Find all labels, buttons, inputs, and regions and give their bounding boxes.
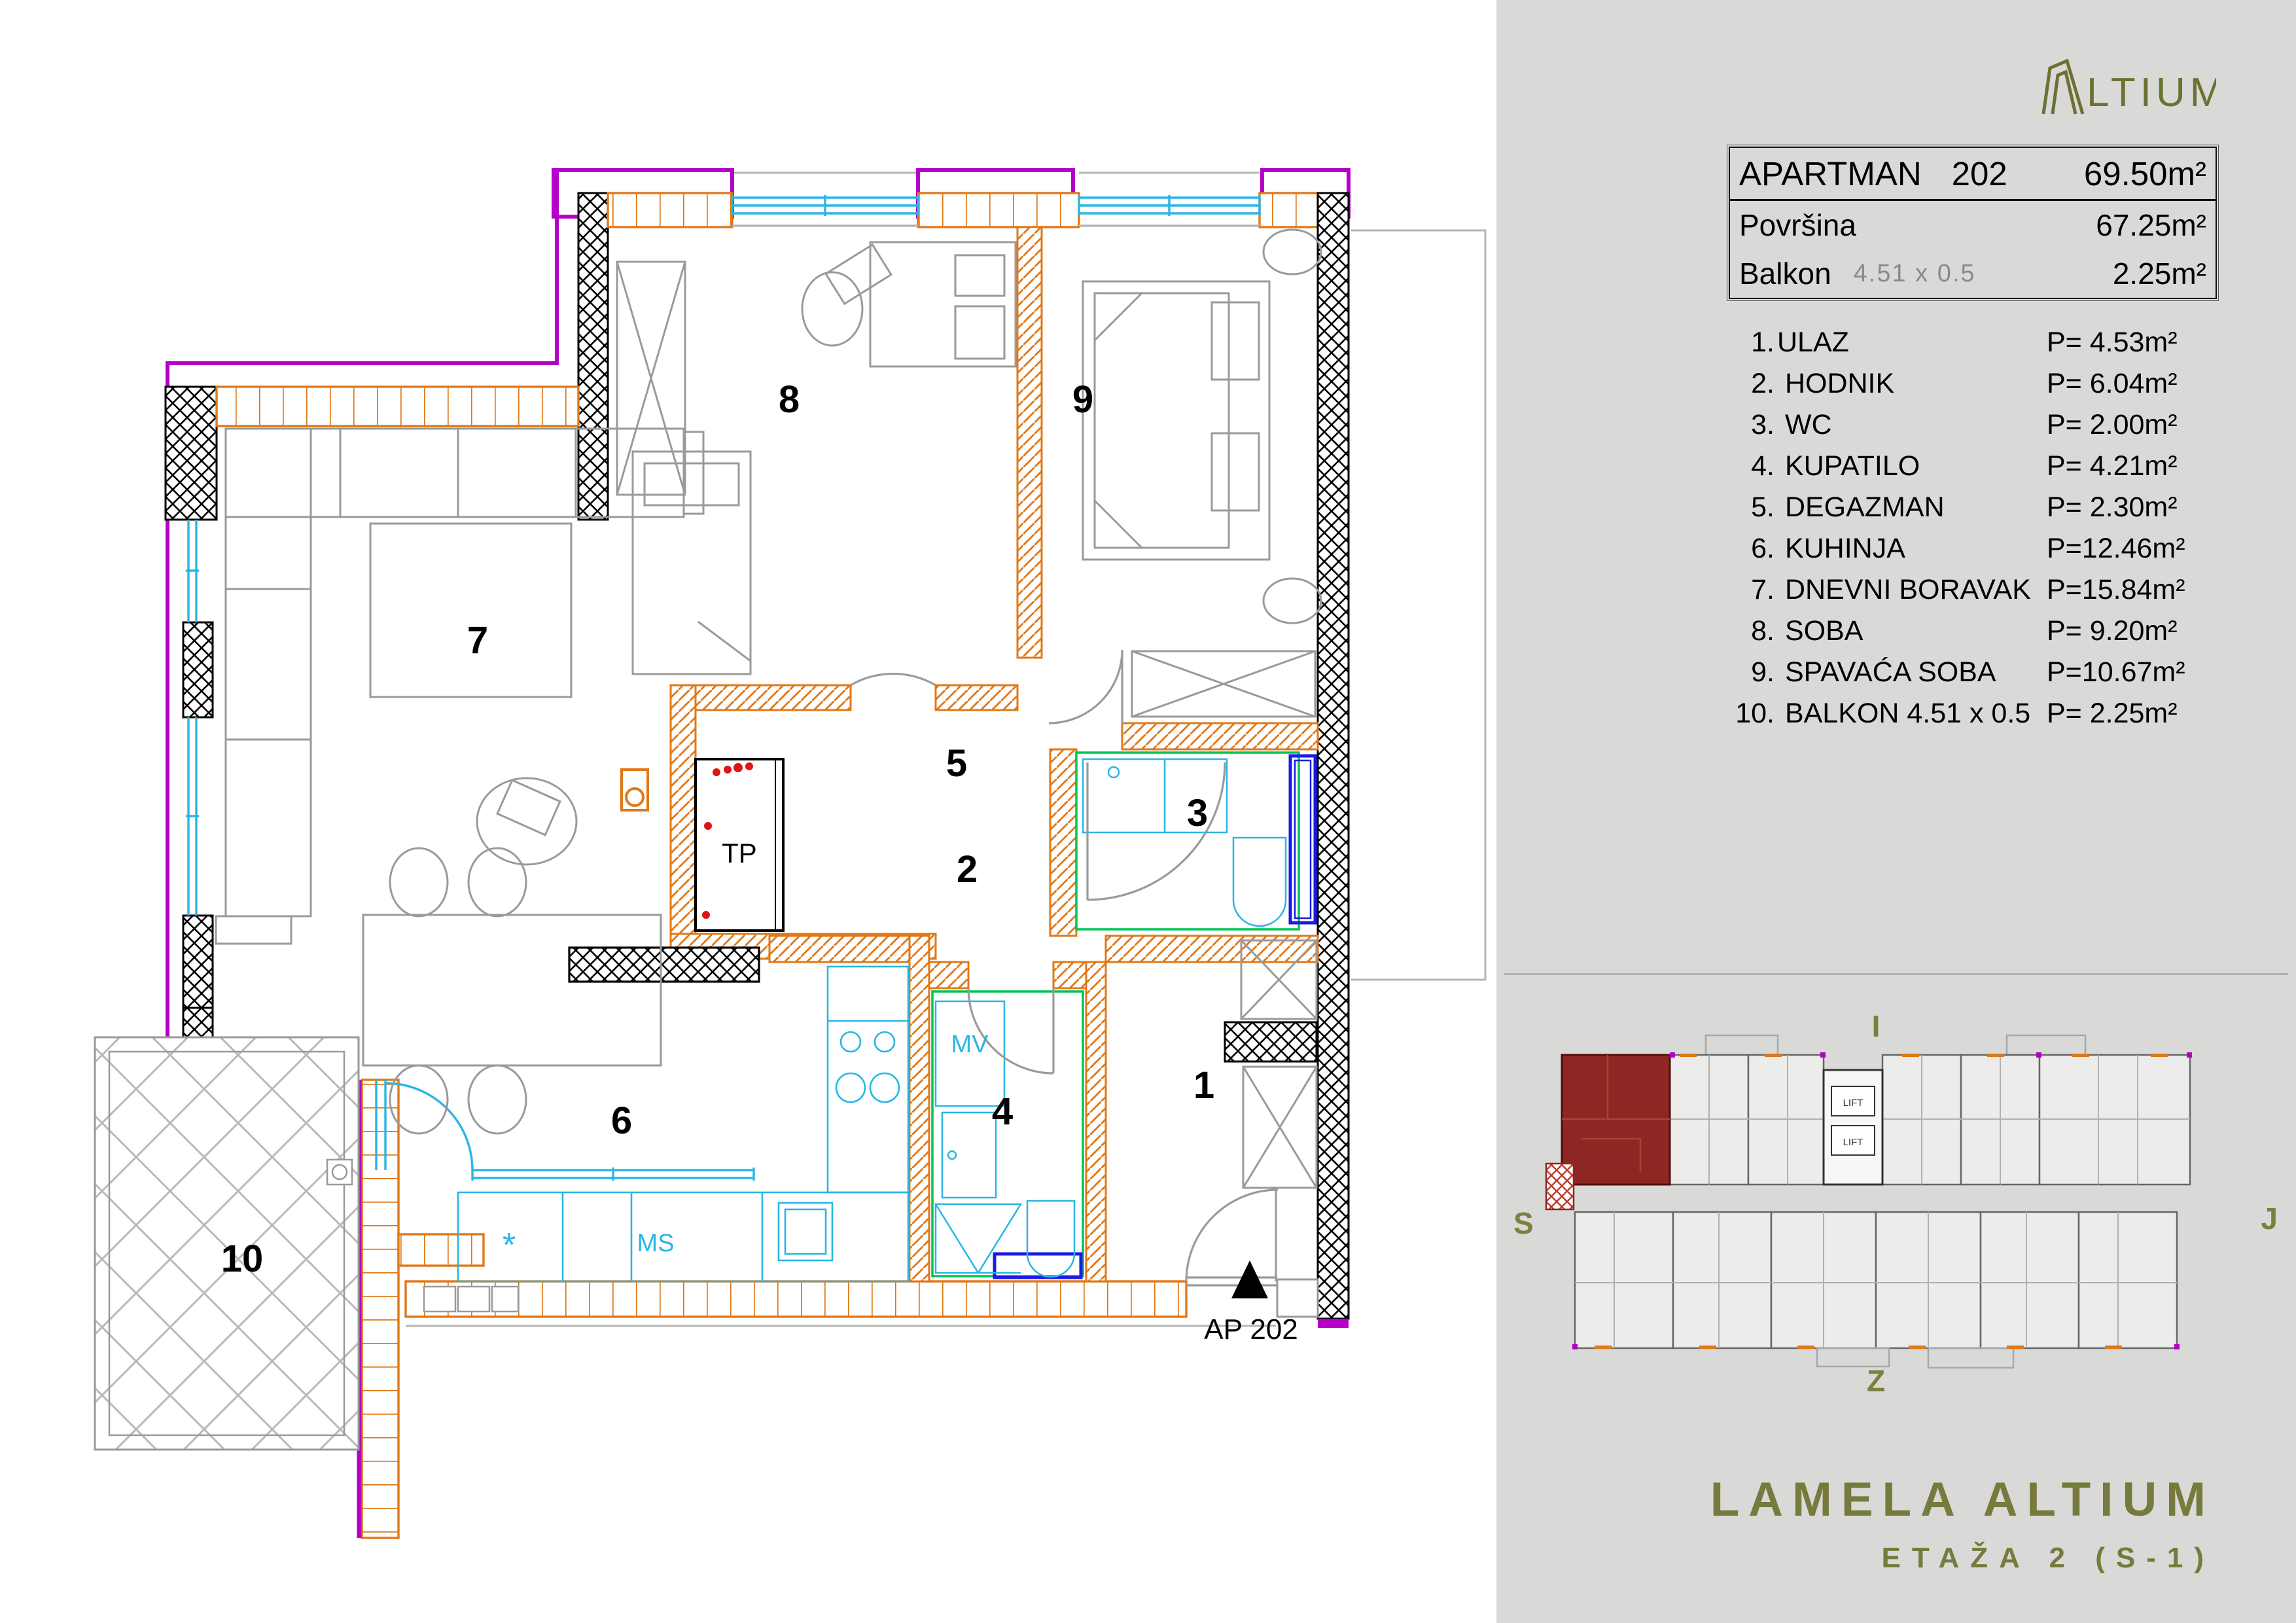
room-9-area: P=10.67m²	[2047, 656, 2214, 688]
room-list-item-10: 10. BALKON 4.51 x 0.5P= 2.25m²	[1729, 693, 2214, 734]
balkon-value: 2.25m²	[2113, 256, 2206, 291]
balkon-dim: 4.51 x 0.5	[1854, 260, 1976, 288]
room-4-name: KUPATILO	[1777, 450, 1920, 482]
compass-west: S	[1513, 1206, 1534, 1240]
coffee-table	[370, 524, 571, 697]
sidebar: LTIUM APARTMAN 202 69.50m² Površina 67.2…	[1496, 0, 2296, 1623]
page: 1 2 3 4 5 6 7 8 9 10 TP MV * MS AP 202 L…	[0, 0, 2296, 1623]
room-list-item-1: 1.ULAZP= 4.53m²	[1729, 322, 2214, 363]
room-list-item-5: 5. DEGAZMANP= 2.30m²	[1729, 487, 2214, 528]
room-label-9: 9	[1072, 378, 1093, 421]
apartment-total-area: 69.50m²	[2084, 154, 2206, 193]
room-list-item-3: 3. WCP= 2.00m²	[1729, 404, 2214, 446]
room-1-name: ULAZ	[1777, 327, 1849, 359]
room-10-num: 10.	[1729, 698, 1775, 730]
stool	[1263, 579, 1321, 623]
apartment-number: 202	[1952, 154, 2007, 193]
compass-east: J	[2261, 1202, 2278, 1236]
tp-label: TP	[722, 838, 757, 868]
room-10-area: P= 2.25m²	[2047, 698, 2214, 730]
apartment-marker: AP 202	[1204, 1260, 1298, 1346]
room-5-num: 5.	[1729, 491, 1775, 524]
room-9-name: SPAVAĆA SOBA	[1777, 656, 1996, 688]
target-apartment	[1546, 1055, 1670, 1209]
stool	[1263, 230, 1321, 274]
room-5-area: P= 2.30m²	[2047, 491, 2214, 524]
kitchen-counters	[458, 967, 908, 1281]
room-3-area: P= 2.00m²	[2047, 409, 2214, 441]
room-7-area: P=15.84m²	[2047, 574, 2214, 606]
room-list-item-6: 6. KUHINJAP=12.46m²	[1729, 528, 2214, 569]
apartment-label: APARTMAN	[1739, 154, 1922, 193]
altium-logo-text: LTIUM	[2087, 70, 2216, 115]
room-8-name: SOBA	[1777, 615, 1863, 647]
room-list-item-7: 7. DNEVNI BORAVAKP=15.84m²	[1729, 569, 2214, 611]
room-label-6: 6	[611, 1099, 632, 1142]
room-3-name: WC	[1777, 409, 1832, 441]
room-label-5: 5	[946, 742, 967, 785]
kitchen-island	[569, 948, 759, 982]
room-1-area: P= 4.53m²	[2047, 327, 2214, 359]
room-label-7: 7	[467, 619, 488, 662]
room-5-name: DEGAZMAN	[1777, 491, 1945, 524]
room-7-name: DNEVNI BORAVAK	[1777, 574, 2031, 606]
wardrobe-8	[617, 262, 685, 495]
target-balcony	[1546, 1164, 1574, 1209]
room-9-num: 9.	[1729, 656, 1775, 688]
wc-room	[1076, 753, 1315, 929]
lift-core: LIFT LIFT	[1824, 1070, 1882, 1185]
ms-label: MS	[637, 1230, 675, 1257]
room-1-num: 1.	[1729, 327, 1775, 359]
room-8-num: 8.	[1729, 615, 1775, 647]
room-label-3: 3	[1187, 792, 1208, 834]
wardrobe-9	[1132, 651, 1315, 717]
sidebar-divider	[1504, 973, 2288, 975]
altium-logo: LTIUM	[2040, 58, 2216, 116]
room-label-2: 2	[957, 848, 978, 891]
room-list-item-2: 2. HODNIKP= 6.04m²	[1729, 363, 2214, 404]
armchair	[477, 778, 576, 865]
sofa	[216, 429, 703, 944]
bottom-window-detail	[424, 1287, 518, 1311]
room-6-area: P=12.46m²	[2047, 533, 2214, 565]
room-list-item-8: 8. SOBAP= 9.20m²	[1729, 611, 2214, 652]
dining-table	[363, 848, 661, 1133]
apartment-marker-label: AP 202	[1204, 1313, 1298, 1346]
vent-unit	[622, 770, 648, 810]
table-row-apartment: APARTMAN 202 69.50m²	[1730, 148, 2216, 201]
povrsina-label: Površina	[1739, 207, 1856, 243]
room-7-num: 7.	[1729, 574, 1775, 606]
room-2-area: P= 6.04m²	[2047, 368, 2214, 400]
floor-label: ETAŽA 2 (S-1)	[1882, 1542, 2215, 1575]
room-2-num: 2.	[1729, 368, 1775, 400]
drain	[327, 1160, 352, 1185]
star-label: *	[503, 1226, 516, 1264]
compass-south: Z	[1867, 1364, 1885, 1394]
altium-logo-icon	[2043, 61, 2083, 114]
lift-label: LIFT	[1843, 1097, 1863, 1109]
room-label-4: 4	[992, 1090, 1013, 1133]
floor-plan: 1 2 3 4 5 6 7 8 9 10 TP MV * MS AP 202	[0, 0, 1496, 1623]
desk	[802, 242, 1016, 366]
mv-label: MV	[951, 1031, 989, 1058]
room-list: 1.ULAZP= 4.53m² 2. HODNIKP= 6.04m² 3. WC…	[1729, 322, 2214, 734]
room-label-10: 10	[221, 1238, 264, 1280]
project-brand: LAMELA ALTIUM	[1710, 1472, 2215, 1527]
room-4-area: P= 4.21m²	[2047, 450, 2214, 482]
wardrobe-hall-b	[1243, 1067, 1316, 1188]
table-row-balkon: Balkon 4.51 x 0.5 2.25m²	[1730, 249, 2216, 298]
lift-label: LIFT	[1843, 1137, 1863, 1148]
room-3-num: 3.	[1729, 409, 1775, 441]
povrsina-value: 67.25m²	[2096, 207, 2206, 243]
hall-block	[1225, 1022, 1316, 1061]
room-8-area: P= 9.20m²	[2047, 615, 2214, 647]
room-label-8: 8	[779, 378, 800, 421]
entry-sidewall	[1277, 1279, 1318, 1317]
room-list-item-9: 9. SPAVAĆA SOBAP=10.67m²	[1729, 652, 2214, 693]
compass-north: I	[1872, 1009, 1881, 1043]
apartment-info-table: APARTMAN 202 69.50m² Površina 67.25m² Ba…	[1729, 147, 2217, 299]
room-6-num: 6.	[1729, 533, 1775, 565]
room-2-name: HODNIK	[1777, 368, 1894, 400]
room-6-name: KUHINJA	[1777, 533, 1905, 565]
bed-double	[1083, 281, 1269, 560]
building-overview-map: I S J Z	[1510, 1008, 2282, 1394]
room-10-name: BALKON 4.51 x 0.5	[1777, 698, 2030, 730]
table-row-povrsina: Površina 67.25m²	[1730, 201, 2216, 249]
room-4-num: 4.	[1729, 450, 1775, 482]
room-label-1: 1	[1193, 1064, 1214, 1107]
balkon-label: Balkon	[1739, 256, 1831, 291]
room-list-item-4: 4. KUPATILOP= 4.21m²	[1729, 446, 2214, 487]
bed-single	[633, 452, 751, 674]
